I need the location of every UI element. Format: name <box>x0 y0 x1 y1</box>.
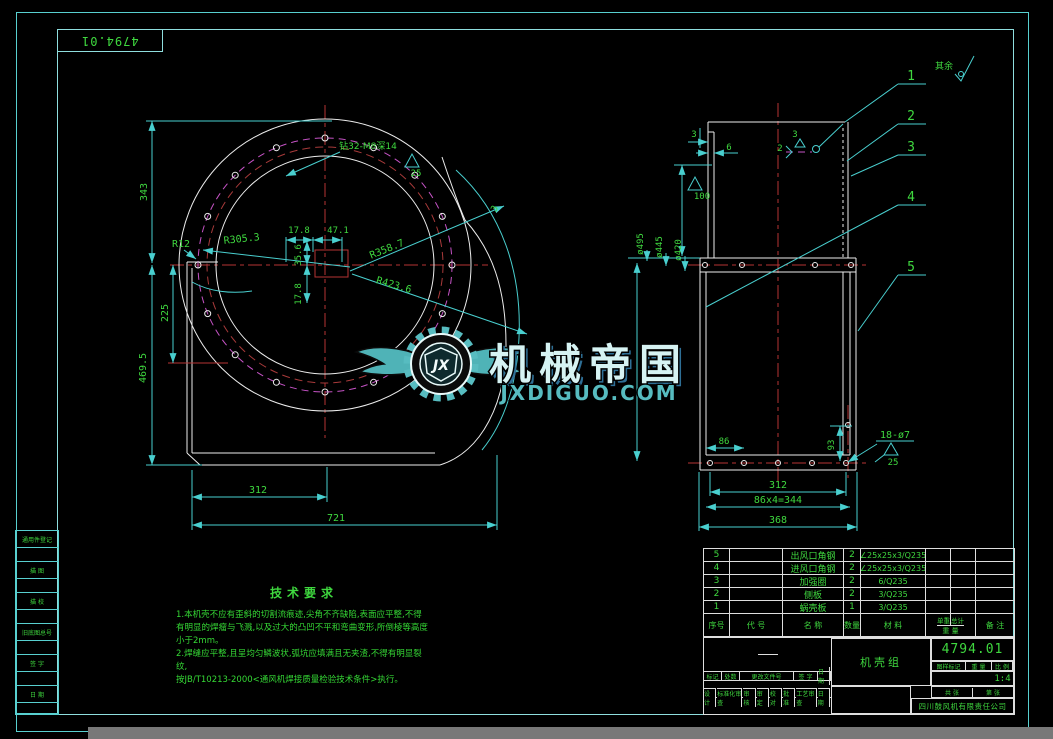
staff-label: 设 计 <box>704 688 716 707</box>
bom-header-no: 序号 <box>704 614 730 636</box>
bom-qty: 2 <box>844 562 861 575</box>
bom-no: 1 <box>704 601 730 614</box>
tech-req-line: 按JB/T10213-2000<通风机焊接质量检验技术条件>执行。 <box>176 674 432 687</box>
rev-count-label: 处数 <box>722 672 740 681</box>
bom-name: 进风口角钢 <box>783 562 844 575</box>
margin-column: 通用件登记 描 图 描 校 旧底图总号 签 字 日 期 <box>15 530 59 715</box>
bom-header-material: 材 料 <box>861 614 926 636</box>
bom-name: 蜗壳板 <box>783 601 844 614</box>
bom-code <box>730 588 783 601</box>
bom-total-weight <box>951 601 976 614</box>
bom-remark <box>976 562 1014 575</box>
tech-req-line: 有明显的焊瘤与飞溅,以及过大的凸凹不平和弯曲变形,所倒棱等高度 <box>176 622 432 635</box>
bom-name: 加强圈 <box>783 575 844 588</box>
tech-req-line: 小于2mm。 <box>176 635 432 648</box>
revision-grid <box>704 638 831 671</box>
margin-empty-cell <box>16 703 58 714</box>
sheet-number-label: 第 张 <box>973 688 1013 697</box>
bom-unit-weight <box>926 588 951 601</box>
weight-label: 重 量 <box>966 662 992 671</box>
bom-total-weight <box>951 588 976 601</box>
sheets-total-label: 共 张 <box>932 688 973 697</box>
bom-code <box>730 549 783 562</box>
bom-table: 5 出风口角钢 2 ∠25x25x3/Q235 4 进风口角钢 2 ∠25x25… <box>703 548 1015 637</box>
bom-material: 6/Q235 <box>861 575 926 588</box>
corner-number: 4794.01 <box>81 34 139 48</box>
mark-weight-scale-values: 1:4 <box>931 671 1014 686</box>
rev-mark-label: 标记 <box>704 672 722 681</box>
margin-empty-cell <box>16 548 58 562</box>
tech-req-title: 技术要求 <box>176 584 432 601</box>
mark-label: 图样标记 <box>932 662 966 671</box>
scale-label: 比 例 <box>992 662 1013 671</box>
bom-header-weight: 重 量 <box>942 626 958 636</box>
bom-unit-weight <box>926 562 951 575</box>
corner-number-box: 4794.01 <box>57 29 163 52</box>
bom-header-remark: 备 注 <box>976 614 1014 636</box>
margin-label: 描 图 <box>16 562 58 579</box>
staff-label: 审 定 <box>757 688 769 707</box>
table-row: 3 加强圈 2 6/Q235 <box>704 575 1014 588</box>
margin-empty-cell <box>16 610 58 624</box>
staff-label: 日 期 <box>818 688 830 707</box>
rev-sign-label: 签 字 <box>794 672 818 681</box>
bom-header-code: 代 号 <box>730 614 783 636</box>
mark-weight-scale-headers: 图样标记 重 量 比 例 <box>931 661 1014 671</box>
margin-empty-cell <box>16 579 58 593</box>
tech-req-line: 1.本机壳不应有歪斜的切割流痕迹,尖角不齐缺陷,表面应平整,不得 <box>176 609 432 622</box>
bom-qty: 2 <box>844 588 861 601</box>
scale-value: 1:4 <box>992 674 1013 684</box>
bom-no: 3 <box>704 575 730 588</box>
rev-doc-label: 更改文件号 <box>740 672 794 681</box>
margin-empty-cell <box>16 672 58 686</box>
bom-header-unit-weight: 单重 <box>937 614 951 625</box>
bom-header-weight-group: 单重 总计 重 量 <box>926 614 976 636</box>
drawing-number-cell: 4794.01 <box>931 638 1014 661</box>
bom-remark <box>976 588 1014 601</box>
margin-label: 通用件登记 <box>16 531 58 548</box>
staff-label: 标准化审查 <box>717 688 742 707</box>
table-row: 5 出风口角钢 2 ∠25x25x3/Q235 <box>704 549 1014 562</box>
bom-qty: 1 <box>844 601 861 614</box>
staff-label: 审 核 <box>743 688 755 707</box>
bom-header-qty: 数量 <box>844 614 861 636</box>
bom-header-total-weight: 总计 <box>951 614 964 625</box>
margin-label: 描 校 <box>16 593 58 610</box>
drawing-number: 4794.01 <box>942 642 1004 657</box>
bom-qty: 2 <box>844 575 861 588</box>
table-row: 1 蜗壳板 1 3/Q235 <box>704 601 1014 614</box>
bom-remark <box>976 601 1014 614</box>
staff-label: 批 准 <box>783 688 795 707</box>
sheet-count-row: 共 张 第 张 <box>931 686 1014 698</box>
staff-grid: 设 计 标准化审查 审 核 审 定 校 对 批 准 工艺审查 日 期 <box>704 681 831 714</box>
bom-qty: 2 <box>844 549 861 562</box>
bom-no: 4 <box>704 562 730 575</box>
bom-unit-weight <box>926 575 951 588</box>
margin-empty-cell <box>16 641 58 655</box>
staff-label: 工艺审查 <box>796 688 816 707</box>
bom-material: 3/Q235 <box>861 588 926 601</box>
bom-name: 侧板 <box>783 588 844 601</box>
empty-cell <box>831 686 911 714</box>
bom-unit-weight <box>926 601 951 614</box>
bom-remark <box>976 549 1014 562</box>
bom-no: 5 <box>704 549 730 562</box>
title-block: 标记 处数 更改文件号 签 字 日 期 设 计 标准化审查 审 核 审 定 校 … <box>703 637 1015 715</box>
tech-req-line: 2.焊缝应平整,且呈均匀鳞波状,弧坑应填满且无夹渣,不得有明显裂纹, <box>176 648 432 674</box>
bom-total-weight <box>951 549 976 562</box>
table-row: 2 侧板 2 3/Q235 <box>704 588 1014 601</box>
bom-header-name: 名 称 <box>783 614 844 636</box>
bom-material: 3/Q235 <box>861 601 926 614</box>
margin-label: 日 期 <box>16 686 58 703</box>
company-name: 四川鼓风机有限责任公司 <box>919 701 1007 712</box>
bom-remark <box>976 575 1014 588</box>
bom-code <box>730 562 783 575</box>
table-row: 4 进风口角钢 2 ∠25x25x3/Q235 <box>704 562 1014 575</box>
part-name: 机壳组 <box>860 654 902 670</box>
bom-no: 2 <box>704 588 730 601</box>
bom-name: 出风口角钢 <box>783 549 844 562</box>
bottom-gray-strip <box>88 727 1053 739</box>
bom-material: ∠25x25x3/Q235 <box>861 562 926 575</box>
technical-requirements: 技术要求 1.本机壳不应有歪斜的切割流痕迹,尖角不齐缺陷,表面应平整,不得 有明… <box>176 584 432 687</box>
bom-header-row: 序号 代 号 名 称 数量 材 料 单重 总计 重 量 备 注 <box>704 614 1014 636</box>
margin-label: 签 字 <box>16 655 58 672</box>
revision-labels: 标记 处数 更改文件号 签 字 日 期 <box>704 671 831 681</box>
bom-total-weight <box>951 562 976 575</box>
bom-code <box>730 601 783 614</box>
bom-total-weight <box>951 575 976 588</box>
company-cell: 四川鼓风机有限责任公司 <box>911 698 1014 714</box>
staff-label: 校 对 <box>770 688 782 707</box>
bom-unit-weight <box>926 549 951 562</box>
margin-label: 旧底图总号 <box>16 624 58 641</box>
bom-code <box>730 575 783 588</box>
part-name-cell: 机壳组 <box>831 638 931 686</box>
bom-material: ∠25x25x3/Q235 <box>861 549 926 562</box>
cad-drawing-canvas: 343 469.5 225 R12 R305.3 17.8 47.1 3 <box>0 0 1053 739</box>
